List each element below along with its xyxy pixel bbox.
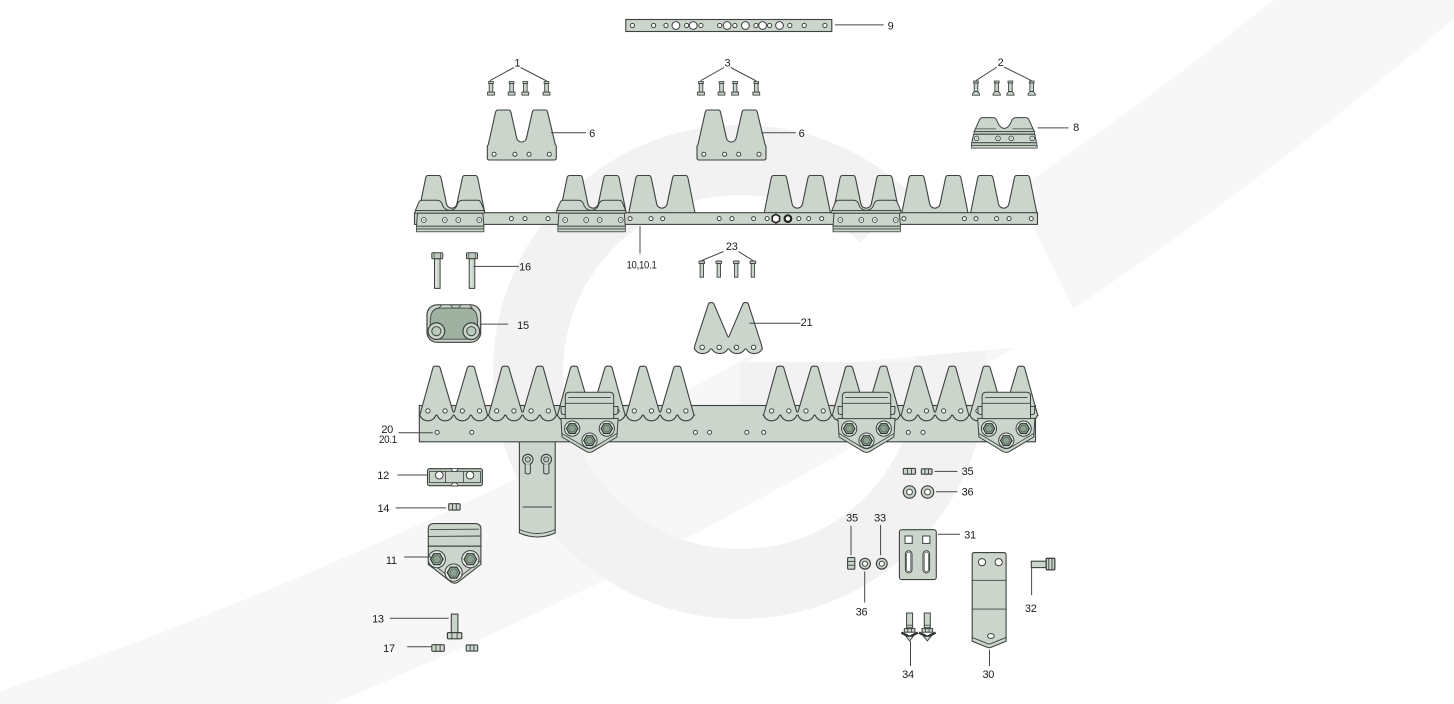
svg-text:20.1: 20.1 — [379, 434, 397, 446]
svg-text:3: 3 — [724, 58, 730, 70]
svg-text:9: 9 — [888, 21, 894, 33]
svg-text:10,10.1: 10,10.1 — [627, 260, 657, 272]
svg-text:15: 15 — [517, 320, 529, 332]
svg-text:12: 12 — [377, 470, 389, 482]
svg-text:36: 36 — [856, 607, 868, 619]
svg-text:36: 36 — [962, 487, 974, 499]
svg-text:11: 11 — [386, 555, 397, 567]
svg-text:13: 13 — [372, 614, 384, 626]
svg-text:16: 16 — [519, 262, 531, 274]
svg-text:33: 33 — [874, 513, 886, 525]
svg-text:6: 6 — [589, 128, 595, 140]
svg-text:35: 35 — [962, 466, 974, 478]
svg-text:6: 6 — [799, 128, 805, 140]
svg-text:34: 34 — [902, 669, 914, 681]
svg-text:1: 1 — [514, 58, 520, 70]
svg-text:31: 31 — [964, 530, 976, 542]
svg-text:8: 8 — [1073, 122, 1079, 134]
svg-text:14: 14 — [377, 503, 389, 515]
svg-text:17: 17 — [383, 643, 395, 655]
svg-text:30: 30 — [982, 669, 994, 681]
svg-text:35: 35 — [846, 513, 858, 525]
svg-text:2: 2 — [998, 57, 1004, 69]
svg-text:32: 32 — [1025, 603, 1037, 615]
svg-text:21: 21 — [801, 317, 813, 329]
svg-text:23: 23 — [726, 241, 738, 253]
